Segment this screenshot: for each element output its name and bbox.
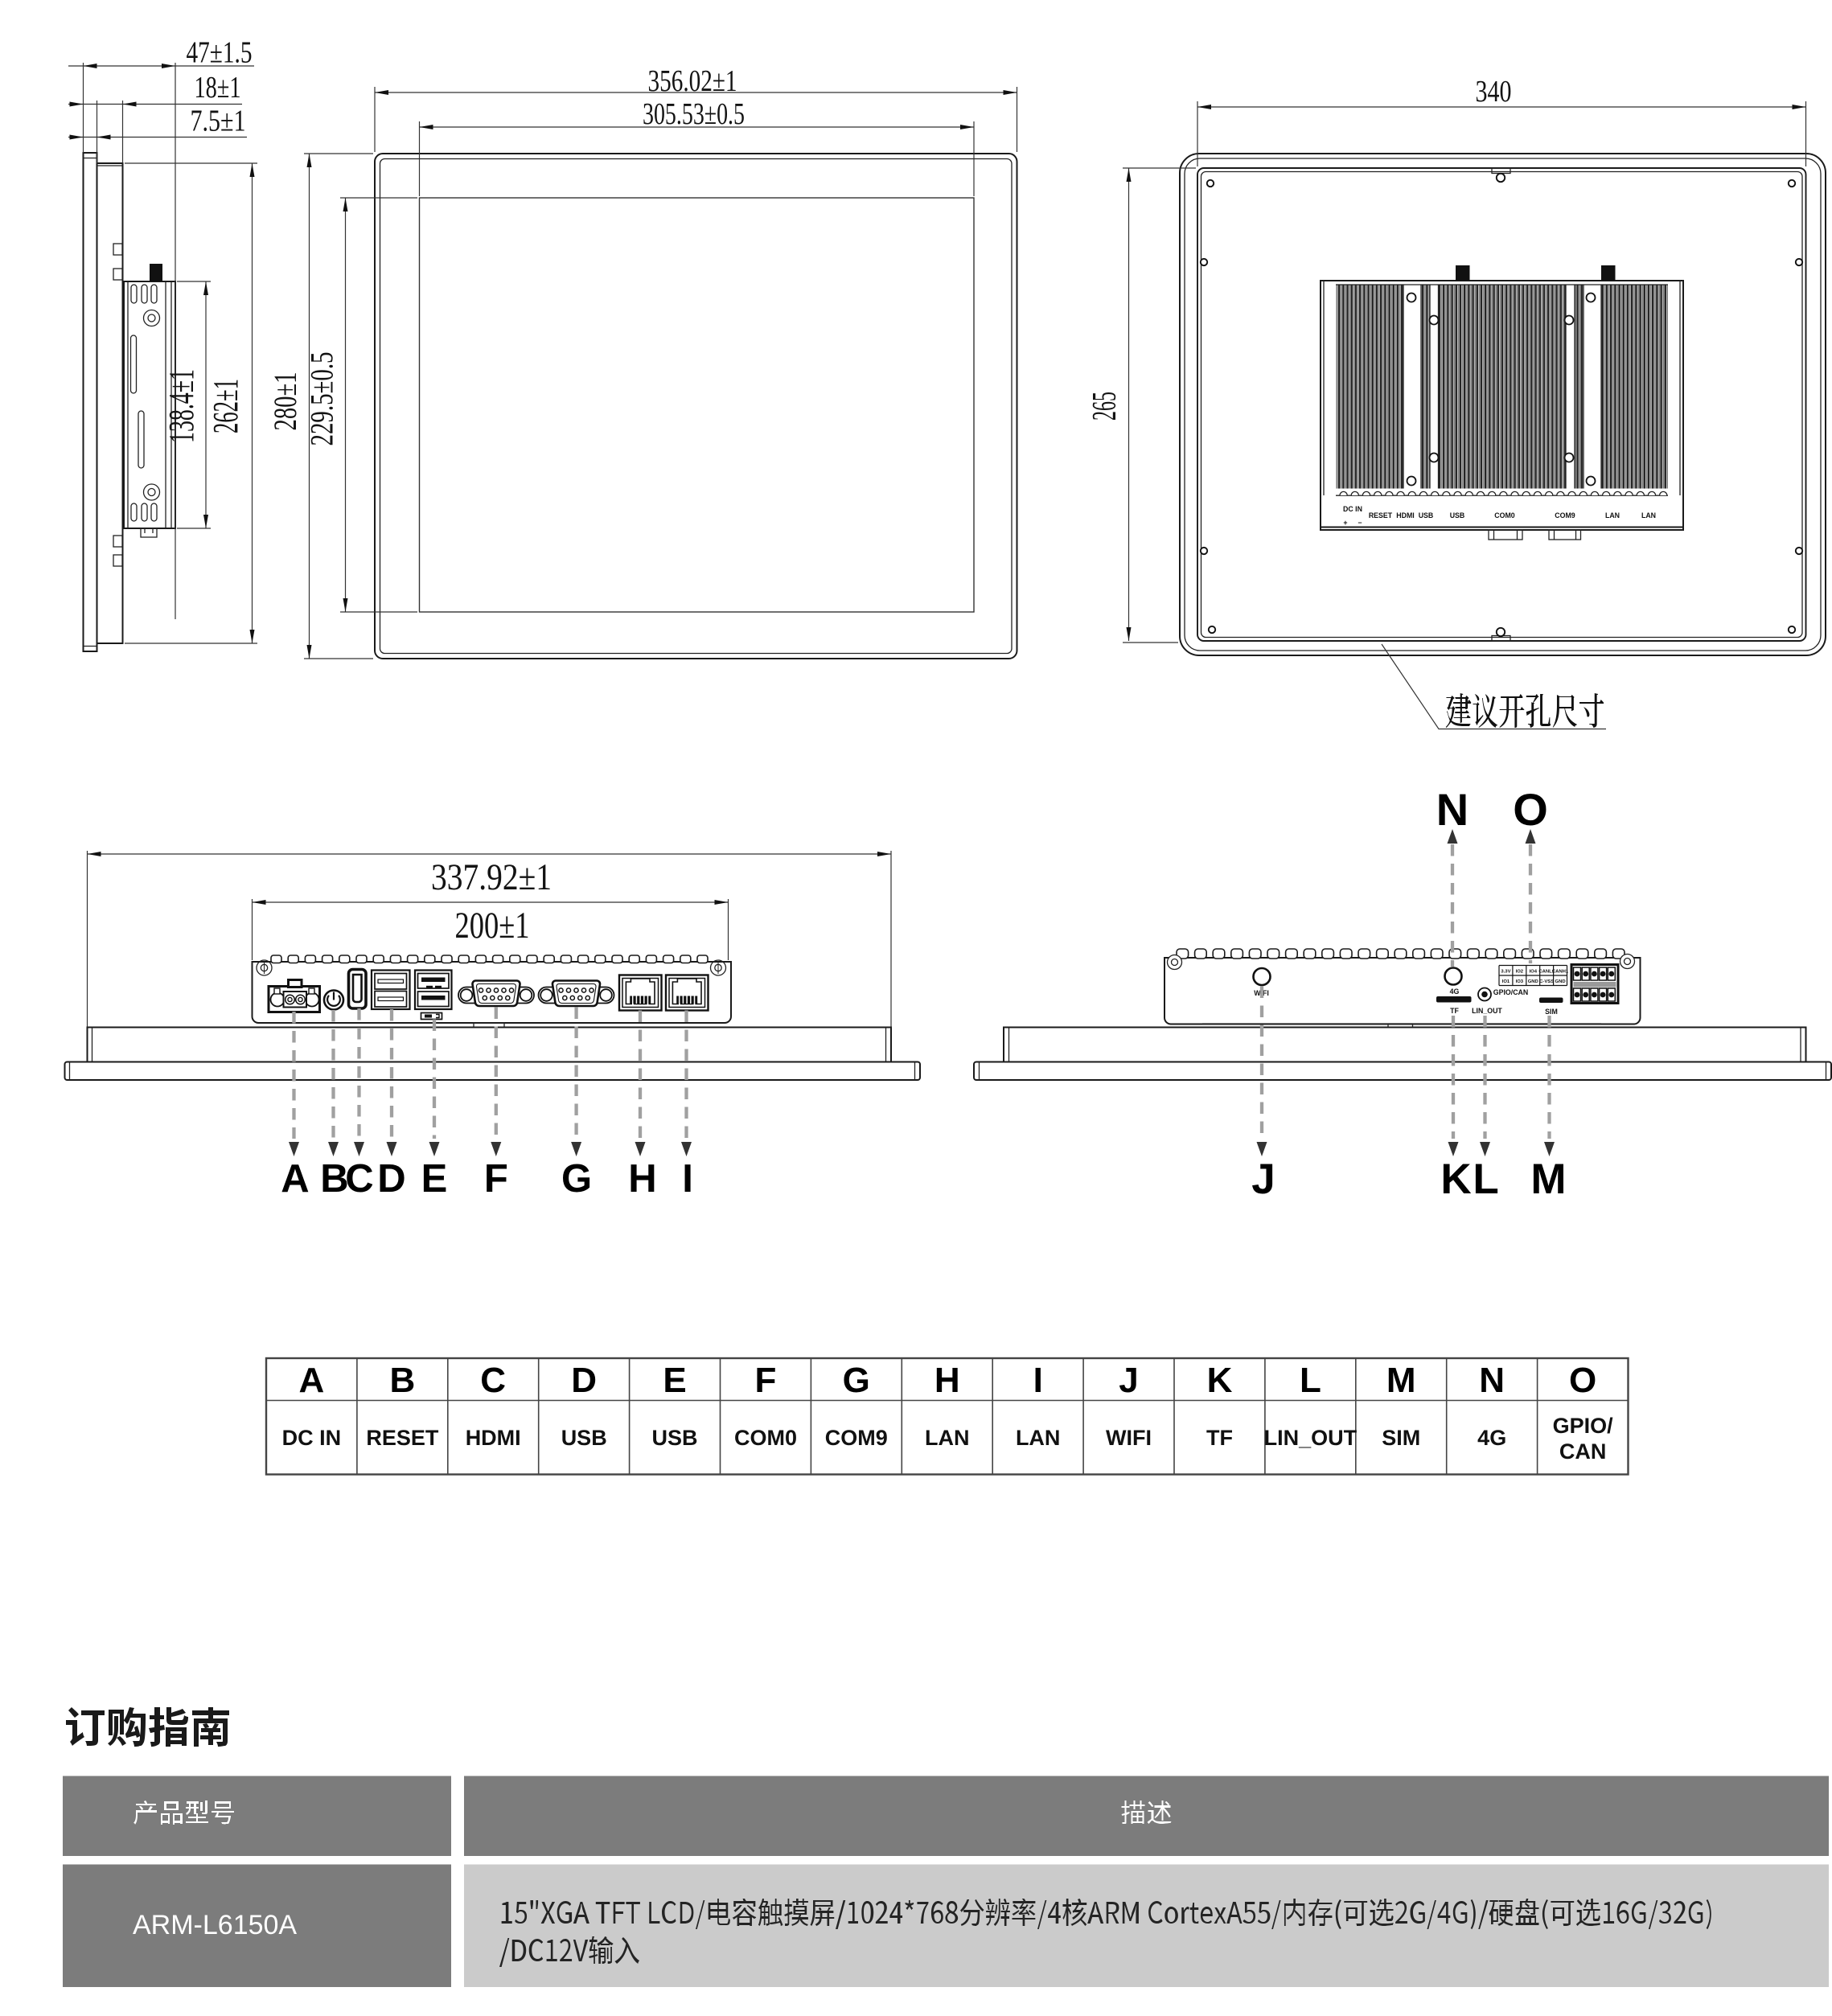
svg-text:O: O [1569,1361,1596,1400]
svg-text:G: G [561,1157,592,1201]
svg-text:COM9: COM9 [825,1426,888,1450]
svg-text:CAN: CAN [1559,1439,1607,1464]
svg-text:LAN: LAN [1641,511,1656,519]
svg-text:DC IN: DC IN [282,1426,342,1450]
svg-text:+: + [1343,519,1347,527]
svg-text:4G: 4G [1450,987,1460,996]
svg-text:200±1: 200±1 [455,905,530,946]
svg-text:N: N [1479,1361,1505,1400]
svg-text:C: C [480,1361,506,1400]
svg-text:LAN: LAN [1605,511,1620,519]
svg-text:ARM-L6150A: ARM-L6150A [133,1910,297,1940]
svg-text:E: E [663,1361,686,1400]
svg-text:USB: USB [1419,511,1434,519]
svg-text:GPIO/CAN: GPIO/CAN [1493,988,1529,996]
svg-text:I: I [1033,1361,1043,1400]
svg-text:IO4: IO4 [1530,970,1538,975]
svg-text:J: J [1119,1361,1138,1400]
svg-text:H: H [934,1361,960,1400]
svg-text:265: 265 [1086,392,1123,421]
svg-text:USB: USB [651,1426,697,1450]
svg-text:K: K [1207,1361,1233,1400]
svg-text:L: L [1300,1361,1321,1400]
svg-text:SIM: SIM [1545,1008,1558,1016]
svg-text:HDMI: HDMI [1396,511,1414,519]
svg-text:SIM: SIM [1382,1426,1420,1450]
svg-text:A: A [299,1361,325,1400]
svg-text:USB: USB [1450,511,1465,519]
svg-text:COM9: COM9 [1555,511,1575,519]
svg-text:LAN: LAN [1016,1426,1061,1450]
svg-text:47±1.5: 47±1.5 [187,36,253,70]
svg-text:WIFI: WIFI [1106,1426,1152,1450]
svg-text:D: D [377,1157,405,1201]
svg-text:LIN_OUT: LIN_OUT [1472,1007,1502,1015]
svg-text:305.53±0.5: 305.53±0.5 [643,97,745,131]
svg-text:280±1: 280±1 [267,372,303,431]
svg-text:262±1: 262±1 [206,379,245,433]
svg-text:18±1: 18±1 [195,71,241,105]
svg-text:IO1: IO1 [1502,979,1510,984]
svg-text:356.02±1: 356.02±1 [648,64,737,98]
svg-text:IO2: IO2 [1516,970,1524,975]
svg-text:337.92±1: 337.92±1 [431,856,552,898]
svg-text:RESET: RESET [366,1426,439,1450]
svg-text:J: J [1251,1156,1275,1203]
svg-text:M: M [1386,1361,1416,1400]
svg-text:4G: 4G [1477,1426,1506,1450]
svg-text:K: K [1440,1156,1471,1203]
svg-text:O: O [1513,784,1548,835]
svg-text:138.4±1: 138.4±1 [162,369,201,443]
svg-text:GPIO/: GPIO/ [1553,1414,1614,1438]
svg-text:M: M [1530,1156,1566,1203]
svg-text:B: B [390,1361,416,1400]
svg-text:7.5±1: 7.5±1 [191,105,246,138]
svg-text:D: D [571,1361,597,1400]
svg-text:E: E [421,1157,448,1201]
svg-text:C-VSS: C-VSS [1539,979,1554,984]
svg-text:COM0: COM0 [734,1426,797,1450]
svg-text:H: H [628,1157,656,1201]
svg-text:G: G [843,1361,870,1400]
svg-text:LAN: LAN [925,1426,970,1450]
svg-text:N: N [1436,784,1468,835]
svg-text:3.3V: 3.3V [1501,970,1510,975]
svg-text:IO3: IO3 [1516,979,1524,984]
svg-text:GND: GND [1555,979,1566,984]
svg-text:229.5±0.5: 229.5±0.5 [304,352,340,446]
svg-text:TF: TF [1206,1426,1233,1450]
svg-text:TF: TF [1450,1007,1459,1015]
svg-text:DC IN: DC IN [1343,505,1362,513]
svg-text:C: C [345,1157,373,1201]
svg-text:−: − [1358,519,1362,527]
svg-text:COM0: COM0 [1494,511,1515,519]
svg-text:HDMI: HDMI [466,1426,521,1450]
svg-text:CANH1: CANH1 [1552,970,1569,975]
svg-text:F: F [484,1157,508,1201]
svg-text:RESET: RESET [1369,511,1393,519]
svg-text:I: I [682,1157,693,1201]
svg-text:A: A [281,1157,309,1201]
svg-text:LIN_OUT: LIN_OUT [1264,1426,1358,1450]
svg-text:GND: GND [1528,979,1538,984]
svg-text:USB: USB [561,1426,607,1450]
svg-text:L: L [1473,1156,1498,1203]
svg-text:F: F [755,1361,777,1400]
svg-text:340: 340 [1476,75,1512,109]
